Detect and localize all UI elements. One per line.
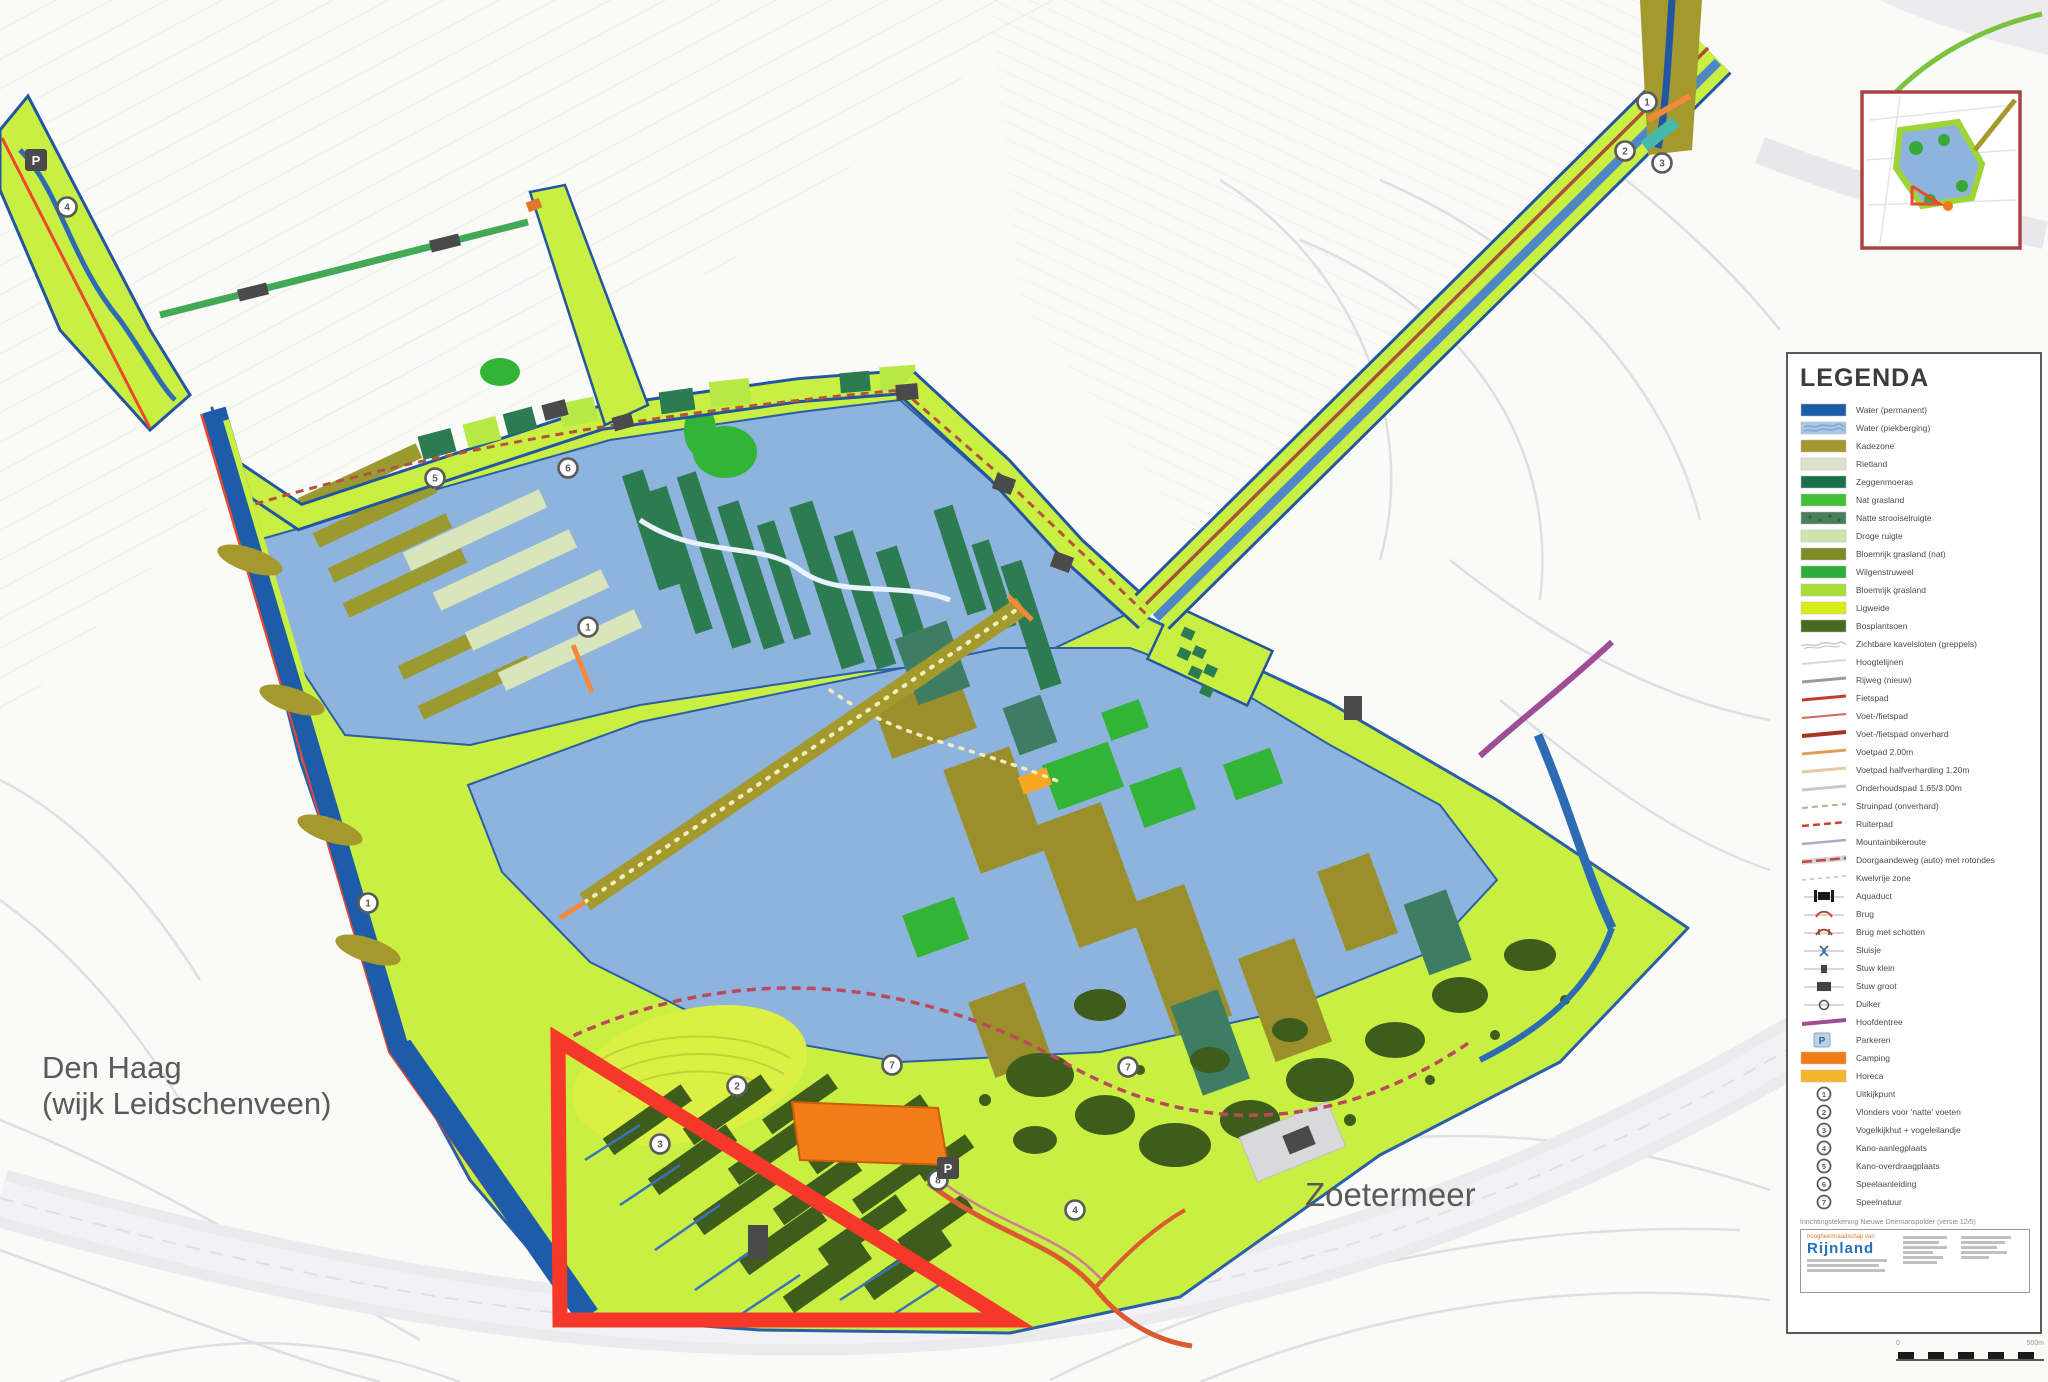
legend-area-item-label: Bloemrijk grasland — [1856, 585, 1926, 595]
legend-line-item: Stuw groot — [1800, 977, 2030, 995]
legend-area-item-symbol — [1800, 582, 1848, 598]
scale-end-label: 500m — [2026, 1340, 2044, 1349]
legend-line-item-label: Hoogtelijnen — [1856, 657, 1903, 667]
legend-line-item: Struinpad (onverhard) — [1800, 797, 2030, 815]
legend-number-item: 6Speelaanleiding — [1800, 1175, 2030, 1193]
legend-area-item: Water (permanent) — [1800, 401, 2030, 419]
scale-start-label: 0 — [1896, 1340, 1900, 1349]
legend-number-item: 1Uitkijkpunt — [1800, 1085, 2030, 1103]
legend-point-item-label: Parkeren — [1856, 1035, 1891, 1045]
legend-line-item-symbol — [1800, 888, 1848, 904]
svg-text:2: 2 — [1622, 147, 1628, 158]
svg-text:6: 6 — [1822, 1180, 1826, 1189]
legend-line-item-label: Voetpad halfverharding 1.20m — [1856, 765, 1969, 775]
legend-area-item-symbol — [1800, 492, 1848, 508]
legend-number-item-symbol: 4 — [1800, 1140, 1848, 1156]
legend-number-item-symbol: 7 — [1800, 1194, 1848, 1210]
legend-number-item-symbol: 5 — [1800, 1158, 1848, 1174]
legend-line-item-symbol — [1800, 744, 1848, 760]
numbered-map-marker: 2 — [728, 1077, 747, 1096]
svg-text:2: 2 — [734, 1082, 740, 1093]
title-block-fields-right — [1961, 1234, 2015, 1261]
legend-line-item-label: Zichtbare kavelsloten (greppels) — [1856, 639, 1977, 649]
legend-line-item-symbol — [1800, 690, 1848, 706]
legend-line-item-label: Duiker — [1856, 999, 1881, 1009]
svg-text:2: 2 — [1822, 1108, 1826, 1117]
legend-line-item-symbol — [1800, 708, 1848, 724]
legend-line-item-label: Fietspad — [1856, 693, 1889, 703]
legend-rows: Water (permanent)Water (piekberging)Kade… — [1800, 401, 2030, 1211]
legend-area-item: Zeggenmoeras — [1800, 473, 2030, 491]
legend-line-item-symbol — [1800, 762, 1848, 778]
legend-line-item: Hoogtelijnen — [1800, 653, 2030, 671]
legend-line-item-label: Stuw groot — [1856, 981, 1897, 991]
legend-area-item-symbol — [1800, 438, 1848, 454]
legend-line-item-label: Brug — [1856, 909, 1874, 919]
numbered-map-marker: 1 — [1638, 93, 1657, 112]
svg-text:4: 4 — [64, 203, 70, 214]
numbered-map-marker: 7 — [883, 1056, 902, 1075]
legend-point-item-symbol — [1800, 1050, 1848, 1066]
legend-line-item: Voetpad 2.00m — [1800, 743, 2030, 761]
legend-area-item: Bosplantsoen — [1800, 617, 2030, 635]
svg-text:5: 5 — [1822, 1162, 1826, 1171]
legend-number-item-label: Speelnatuur — [1856, 1197, 1902, 1207]
legend-area-item-symbol — [1800, 510, 1848, 526]
legend-area-item: Natte strooiselruigte — [1800, 509, 2030, 527]
legend-title: LEGENDA — [1800, 364, 2030, 393]
legend-area-item: Rietland — [1800, 455, 2030, 473]
legend-number-item: 5Kano-overdraagplaats — [1800, 1157, 2030, 1175]
legend-line-item: Duiker — [1800, 995, 2030, 1013]
legend-line-item-symbol — [1800, 906, 1848, 922]
legend-line-item-symbol — [1800, 942, 1848, 958]
legend-area-item-symbol — [1800, 600, 1848, 616]
legend-area-item-symbol — [1800, 420, 1848, 436]
numbered-map-marker: 1 — [359, 894, 378, 913]
legend-line-item: Fietspad — [1800, 689, 2030, 707]
numbered-map-marker: 3 — [1653, 154, 1672, 173]
legend-area-item: Bloemrijk grasland — [1800, 581, 2030, 599]
legend-area-item-label: Natte strooiselruigte — [1856, 513, 1932, 523]
legend-point-item: Horeca — [1800, 1067, 2030, 1085]
numbered-map-marker: 5 — [426, 469, 445, 488]
legend-line-item-label: Aquaduct — [1856, 891, 1892, 901]
legend-number-item-label: Vogelkijkhut + vogeleilandje — [1856, 1125, 1961, 1135]
legend-line-item-symbol — [1800, 870, 1848, 886]
legend-number-item-label: Uitkijkpunt — [1856, 1089, 1895, 1099]
legend-number-item: 2Vlonders voor 'natte' voeten — [1800, 1103, 2030, 1121]
legend-line-item: Zichtbare kavelsloten (greppels) — [1800, 635, 2030, 653]
numbered-map-marker: 7 — [1119, 1058, 1138, 1077]
legend-number-item-label: Kano-overdraagplaats — [1856, 1161, 1940, 1171]
legend-line-item-symbol — [1800, 654, 1848, 670]
org-name-label: Rijnland — [1807, 1241, 1893, 1257]
legend-number-item-label: Vlonders voor 'natte' voeten — [1856, 1107, 1961, 1117]
legend-number-item: 3Vogelkijkhut + vogeleilandje — [1800, 1121, 2030, 1139]
legend-number-item-symbol: 3 — [1800, 1122, 1848, 1138]
legend-area-item-symbol — [1800, 618, 1848, 634]
legend-line-item: Mountainbikeroute — [1800, 833, 2030, 851]
svg-text:4: 4 — [1072, 1206, 1078, 1217]
numbered-map-marker: 4 — [58, 198, 77, 217]
scale-bar: 0 500m — [1896, 1340, 2044, 1363]
svg-text:1: 1 — [1822, 1090, 1826, 1099]
legend-line-item: Stuw klein — [1800, 959, 2030, 977]
legend-line-item-label: Mountainbikeroute — [1856, 837, 1926, 847]
legend-area-item-label: Droge ruigte — [1856, 531, 1903, 541]
svg-text:P: P — [944, 1161, 953, 1176]
svg-text:7: 7 — [1125, 1063, 1131, 1074]
legend-line-item-symbol — [1800, 798, 1848, 814]
legend-line-item: Brug met schotten — [1800, 923, 2030, 941]
legend-line-item-symbol — [1800, 726, 1848, 742]
numbered-map-marker: 6 — [559, 459, 578, 478]
title-block-fields-left — [1903, 1234, 1951, 1266]
legend-number-item: 7Speelnatuur — [1800, 1193, 2030, 1211]
legend-line-item: Aquaduct — [1800, 887, 2030, 905]
legend-line-item-symbol — [1800, 780, 1848, 796]
svg-text:7: 7 — [1822, 1198, 1826, 1207]
legend-line-item-label: Struinpad (onverhard) — [1856, 801, 1939, 811]
legend-line-item-label: Onderhoudspad 1.65/3.00m — [1856, 783, 1962, 793]
legend-line-item: Hoofdentree — [1800, 1013, 2030, 1031]
legend-line-item: Sluisje — [1800, 941, 2030, 959]
legend-line-item-label: Sluisje — [1856, 945, 1881, 955]
legend-line-item-symbol — [1800, 672, 1848, 688]
document-title-line: Inrichtingstekening Nieuwe Driemanspolde… — [1800, 1219, 2030, 1226]
legend-line-item: Rijweg (nieuw) — [1800, 671, 2030, 689]
legend-area-item-label: Rietland — [1856, 459, 1887, 469]
scale-bar-graphic — [1896, 1349, 2044, 1363]
legend-point-item: PParkeren — [1800, 1031, 2030, 1049]
legend-line-item-symbol — [1800, 1014, 1848, 1030]
svg-text:3: 3 — [1659, 159, 1665, 170]
legend-area-item: Droge ruigte — [1800, 527, 2030, 545]
legend-area-item-symbol — [1800, 546, 1848, 562]
svg-text:1: 1 — [1644, 98, 1650, 109]
legend-line-item-label: Voet-/fietspad onverhard — [1856, 729, 1949, 739]
city-label-den-haag-1: Den Haag — [42, 1050, 182, 1085]
svg-text:5: 5 — [432, 474, 438, 485]
legend-line-item: Voetpad halfverharding 1.20m — [1800, 761, 2030, 779]
legend-line-item-symbol — [1800, 996, 1848, 1012]
legend-line-item-label: Stuw klein — [1856, 963, 1895, 973]
legend-line-item-label: Kwelvrije zone — [1856, 873, 1911, 883]
parking-marker: P — [937, 1157, 959, 1179]
legend-area-item: Bloemrijk grasland (nat) — [1800, 545, 2030, 563]
legend-line-item-symbol — [1800, 636, 1848, 652]
legend-area-item-label: Bosplantsoen — [1856, 621, 1908, 631]
legend-line-item-symbol — [1800, 852, 1848, 868]
legend-line-item: Brug — [1800, 905, 2030, 923]
legend-line-item-symbol — [1800, 960, 1848, 976]
legend-point-item-symbol — [1800, 1068, 1848, 1084]
legend-line-item: Onderhoudspad 1.65/3.00m — [1800, 779, 2030, 797]
legend-area-item-label: Bloemrijk grasland (nat) — [1856, 549, 1946, 559]
legend-line-item-label: Rijweg (nieuw) — [1856, 675, 1912, 685]
city-label-den-haag-2: (wijk Leidschenveen) — [42, 1086, 331, 1121]
legend-area-item-label: Water (permanent) — [1856, 405, 1927, 415]
legend-line-item: Voet-/fietspad — [1800, 707, 2030, 725]
legend-area-item-label: Kadezone — [1856, 441, 1894, 451]
legend-point-item-label: Camping — [1856, 1053, 1890, 1063]
legend-line-item-label: Hoofdentree — [1856, 1017, 1903, 1027]
legend-line-item-symbol — [1800, 834, 1848, 850]
city-label-zoetermeer: Zoetermeer — [1305, 1176, 1476, 1213]
legend-area-item-label: Ligweide — [1856, 603, 1890, 613]
legend-area-item-symbol — [1800, 402, 1848, 418]
legend-footer: Inrichtingstekening Nieuwe Driemanspolde… — [1800, 1219, 2030, 1293]
legend-number-item-symbol: 1 — [1800, 1086, 1848, 1102]
rijnland-logo: hoogheemraadschap van Rijnland — [1807, 1234, 1893, 1274]
legend-line-item-symbol — [1800, 978, 1848, 994]
legend-area-item: Nat grasland — [1800, 491, 2030, 509]
legend-number-item-symbol: 2 — [1800, 1104, 1848, 1120]
legend-point-item-symbol: P — [1800, 1032, 1848, 1048]
numbered-map-marker: 3 — [651, 1135, 670, 1154]
legend-line-item-symbol — [1800, 816, 1848, 832]
legend-area-item: Wilgenstruweel — [1800, 563, 2030, 581]
legend-line-item-symbol — [1800, 924, 1848, 940]
camping-area — [792, 1102, 948, 1165]
title-block: hoogheemraadschap van Rijnland — [1800, 1229, 2030, 1293]
legend-area-item-symbol — [1800, 456, 1848, 472]
legend-number-item-label: Speelaanleiding — [1856, 1179, 1917, 1189]
svg-text:1: 1 — [585, 623, 591, 634]
plan-map-page: 45611237847123PP Den Haag (wijk Leidsche… — [0, 0, 2048, 1382]
numbered-map-marker: 4 — [1066, 1201, 1085, 1220]
svg-text:6: 6 — [565, 464, 571, 475]
legend-number-item-label: Kano-aanlegplaats — [1856, 1143, 1927, 1153]
inset-overview-map — [1862, 14, 2042, 248]
legend-line-item-label: Doorgaandeweg (auto) met rotondes — [1856, 855, 1995, 865]
legend-line-item-label: Voet-/fietspad — [1856, 711, 1908, 721]
legend-number-item: 4Kano-aanlegplaats — [1800, 1139, 2030, 1157]
legend-line-item-label: Ruiterpad — [1856, 819, 1893, 829]
legend-area-item-symbol — [1800, 474, 1848, 490]
legend-area-item-label: Zeggenmoeras — [1856, 477, 1913, 487]
legend-area-item-label: Wilgenstruweel — [1856, 567, 1914, 577]
legend-panel: LEGENDA Water (permanent)Water (piekberg… — [1786, 352, 2042, 1334]
svg-text:7: 7 — [889, 1061, 895, 1072]
legend-area-item: Ligweide — [1800, 599, 2030, 617]
svg-text:3: 3 — [1822, 1126, 1826, 1135]
legend-line-item: Doorgaandeweg (auto) met rotondes — [1800, 851, 2030, 869]
svg-text:1: 1 — [365, 899, 371, 910]
legend-area-item-label: Nat grasland — [1856, 495, 1904, 505]
legend-area-item: Kadezone — [1800, 437, 2030, 455]
numbered-map-marker: 1 — [579, 618, 598, 637]
legend-line-item-label: Brug met schotten — [1856, 927, 1925, 937]
svg-text:P: P — [32, 153, 41, 168]
svg-text:P: P — [1819, 1036, 1826, 1047]
legend-area-item-label: Water (piekberging) — [1856, 423, 1930, 433]
legend-point-item: Camping — [1800, 1049, 2030, 1067]
svg-text:3: 3 — [657, 1140, 663, 1151]
legend-number-item-symbol: 6 — [1800, 1176, 1848, 1192]
legend-point-item-label: Horeca — [1856, 1071, 1883, 1081]
map-canvas: 45611237847123PP Den Haag (wijk Leidsche… — [0, 0, 2048, 1382]
legend-line-item: Voet-/fietspad onverhard — [1800, 725, 2030, 743]
legend-area-item: Water (piekberging) — [1800, 419, 2030, 437]
parking-marker: P — [25, 149, 47, 171]
legend-line-item-label: Voetpad 2.00m — [1856, 747, 1913, 757]
legend-area-item-symbol — [1800, 564, 1848, 580]
legend-area-item-symbol — [1800, 528, 1848, 544]
legend-line-item: Ruiterpad — [1800, 815, 2030, 833]
legend-line-item: Kwelvrije zone — [1800, 869, 2030, 887]
numbered-map-marker: 2 — [1616, 142, 1635, 161]
